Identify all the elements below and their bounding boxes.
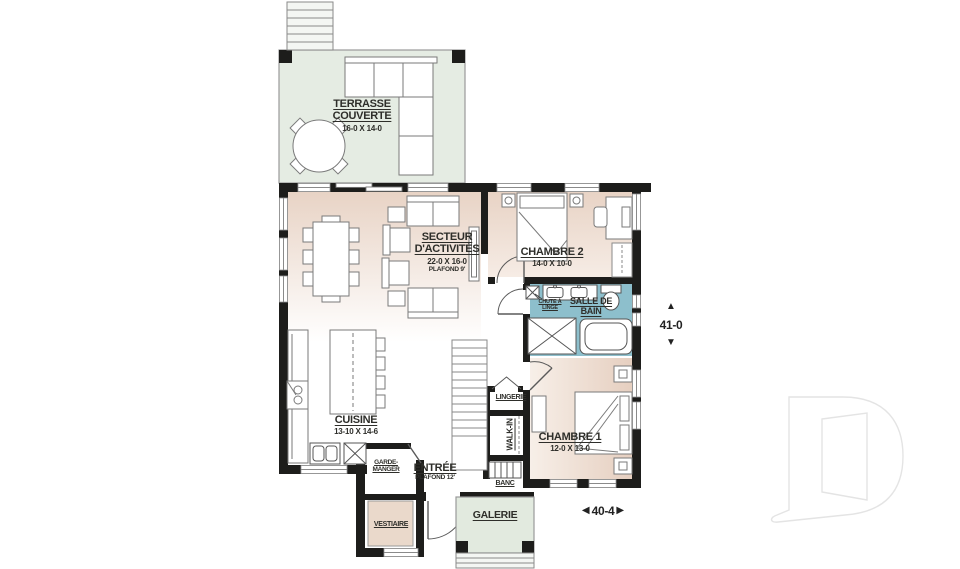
brand-d-watermark [772, 397, 904, 522]
galerie-name: GALERIE [458, 510, 532, 522]
secteur-label: SECTEUR D'ACTIVITÉS 22-0 X 16-0 PLAFOND … [407, 231, 487, 273]
floor-plan-canvas: TERRASSE COUVERTE 16-0 X 14-0 SECTEUR D'… [0, 0, 960, 569]
cuisine-dims: 13-10 X 14-6 [326, 427, 386, 436]
kitchen-counter [287, 330, 308, 463]
kitchen-island [330, 330, 385, 414]
cuisine-label: CUISINE 13-10 X 14-6 [326, 414, 386, 436]
staircase [452, 340, 487, 470]
stove [310, 443, 340, 464]
garde-manger-name: GARDE-MANGER [368, 459, 404, 474]
terrasse-name: TERRASSE COUVERTE [322, 98, 402, 123]
floor-plan-drawing [0, 0, 960, 569]
arrow-up-icon: ▲ [666, 302, 676, 312]
closet-chambre2 [612, 243, 632, 277]
height-dimension-value: 41-0 [660, 318, 683, 332]
arrow-left-icon: ◀ [582, 506, 590, 516]
chambre1-name: CHAMBRE 1 [528, 431, 612, 443]
chambre2-name: CHAMBRE 2 [512, 246, 592, 258]
height-dimension: ▲ 41-0 ▼ [648, 302, 694, 348]
secteur-dims: 22-0 X 16-0 [407, 257, 487, 266]
laundry-chute [526, 286, 539, 299]
shower [528, 318, 576, 354]
chute-label: CHUTE À LINGE [536, 299, 564, 311]
chambre2-dims: 14-0 X 10-0 [512, 259, 592, 268]
galerie-label: GALERIE [458, 510, 532, 522]
entree-note: PLAFOND 12' [406, 474, 464, 481]
entree-name: ENTRÉE [406, 462, 464, 474]
width-dimension-value: 40-4 [592, 504, 615, 518]
vestiaire-label: VESTIAIRE [366, 521, 416, 529]
chambre1-dims: 12-0 X 13-0 [528, 444, 612, 453]
bathtub [580, 319, 632, 354]
cuisine-name: CUISINE [326, 414, 386, 426]
salle-de-bain-label: SALLE DE BAIN [568, 296, 614, 316]
secteur-name: SECTEUR D'ACTIVITÉS [407, 231, 487, 256]
walkin-name: WALK-IN [507, 399, 516, 469]
terrace-steps [287, 2, 333, 50]
galerie-steps [456, 553, 534, 568]
salle-de-bain-name: SALLE DE BAIN [568, 296, 614, 316]
garde-manger-label: GARDE-MANGER [368, 459, 404, 474]
dresser-chambre1 [532, 396, 546, 432]
entree-label: ENTRÉE PLAFOND 12' [406, 462, 464, 481]
arrow-right-icon: ▶ [616, 506, 624, 516]
entry-bench [489, 462, 521, 478]
banc-name: BANC [487, 480, 523, 488]
chambre1-label: CHAMBRE 1 12-0 X 13-0 [528, 431, 612, 453]
banc-label: BANC [487, 480, 523, 488]
dishwasher [344, 443, 366, 464]
walkin-label: WALK-IN [507, 399, 516, 469]
arrow-down-icon: ▼ [666, 338, 676, 348]
terrasse-label: TERRASSE COUVERTE 16-0 X 14-0 [322, 98, 402, 133]
width-dimension: ◀ 40-4 ▶ [560, 504, 646, 518]
vestiaire-name: VESTIAIRE [366, 521, 416, 529]
galerie-deck [456, 497, 534, 553]
secteur-note: PLAFOND 9' [407, 266, 487, 273]
chute-name: CHUTE À LINGE [536, 299, 564, 311]
terrasse-dims: 16-0 X 14-0 [322, 124, 402, 133]
chambre2-label: CHAMBRE 2 14-0 X 10-0 [512, 246, 592, 268]
